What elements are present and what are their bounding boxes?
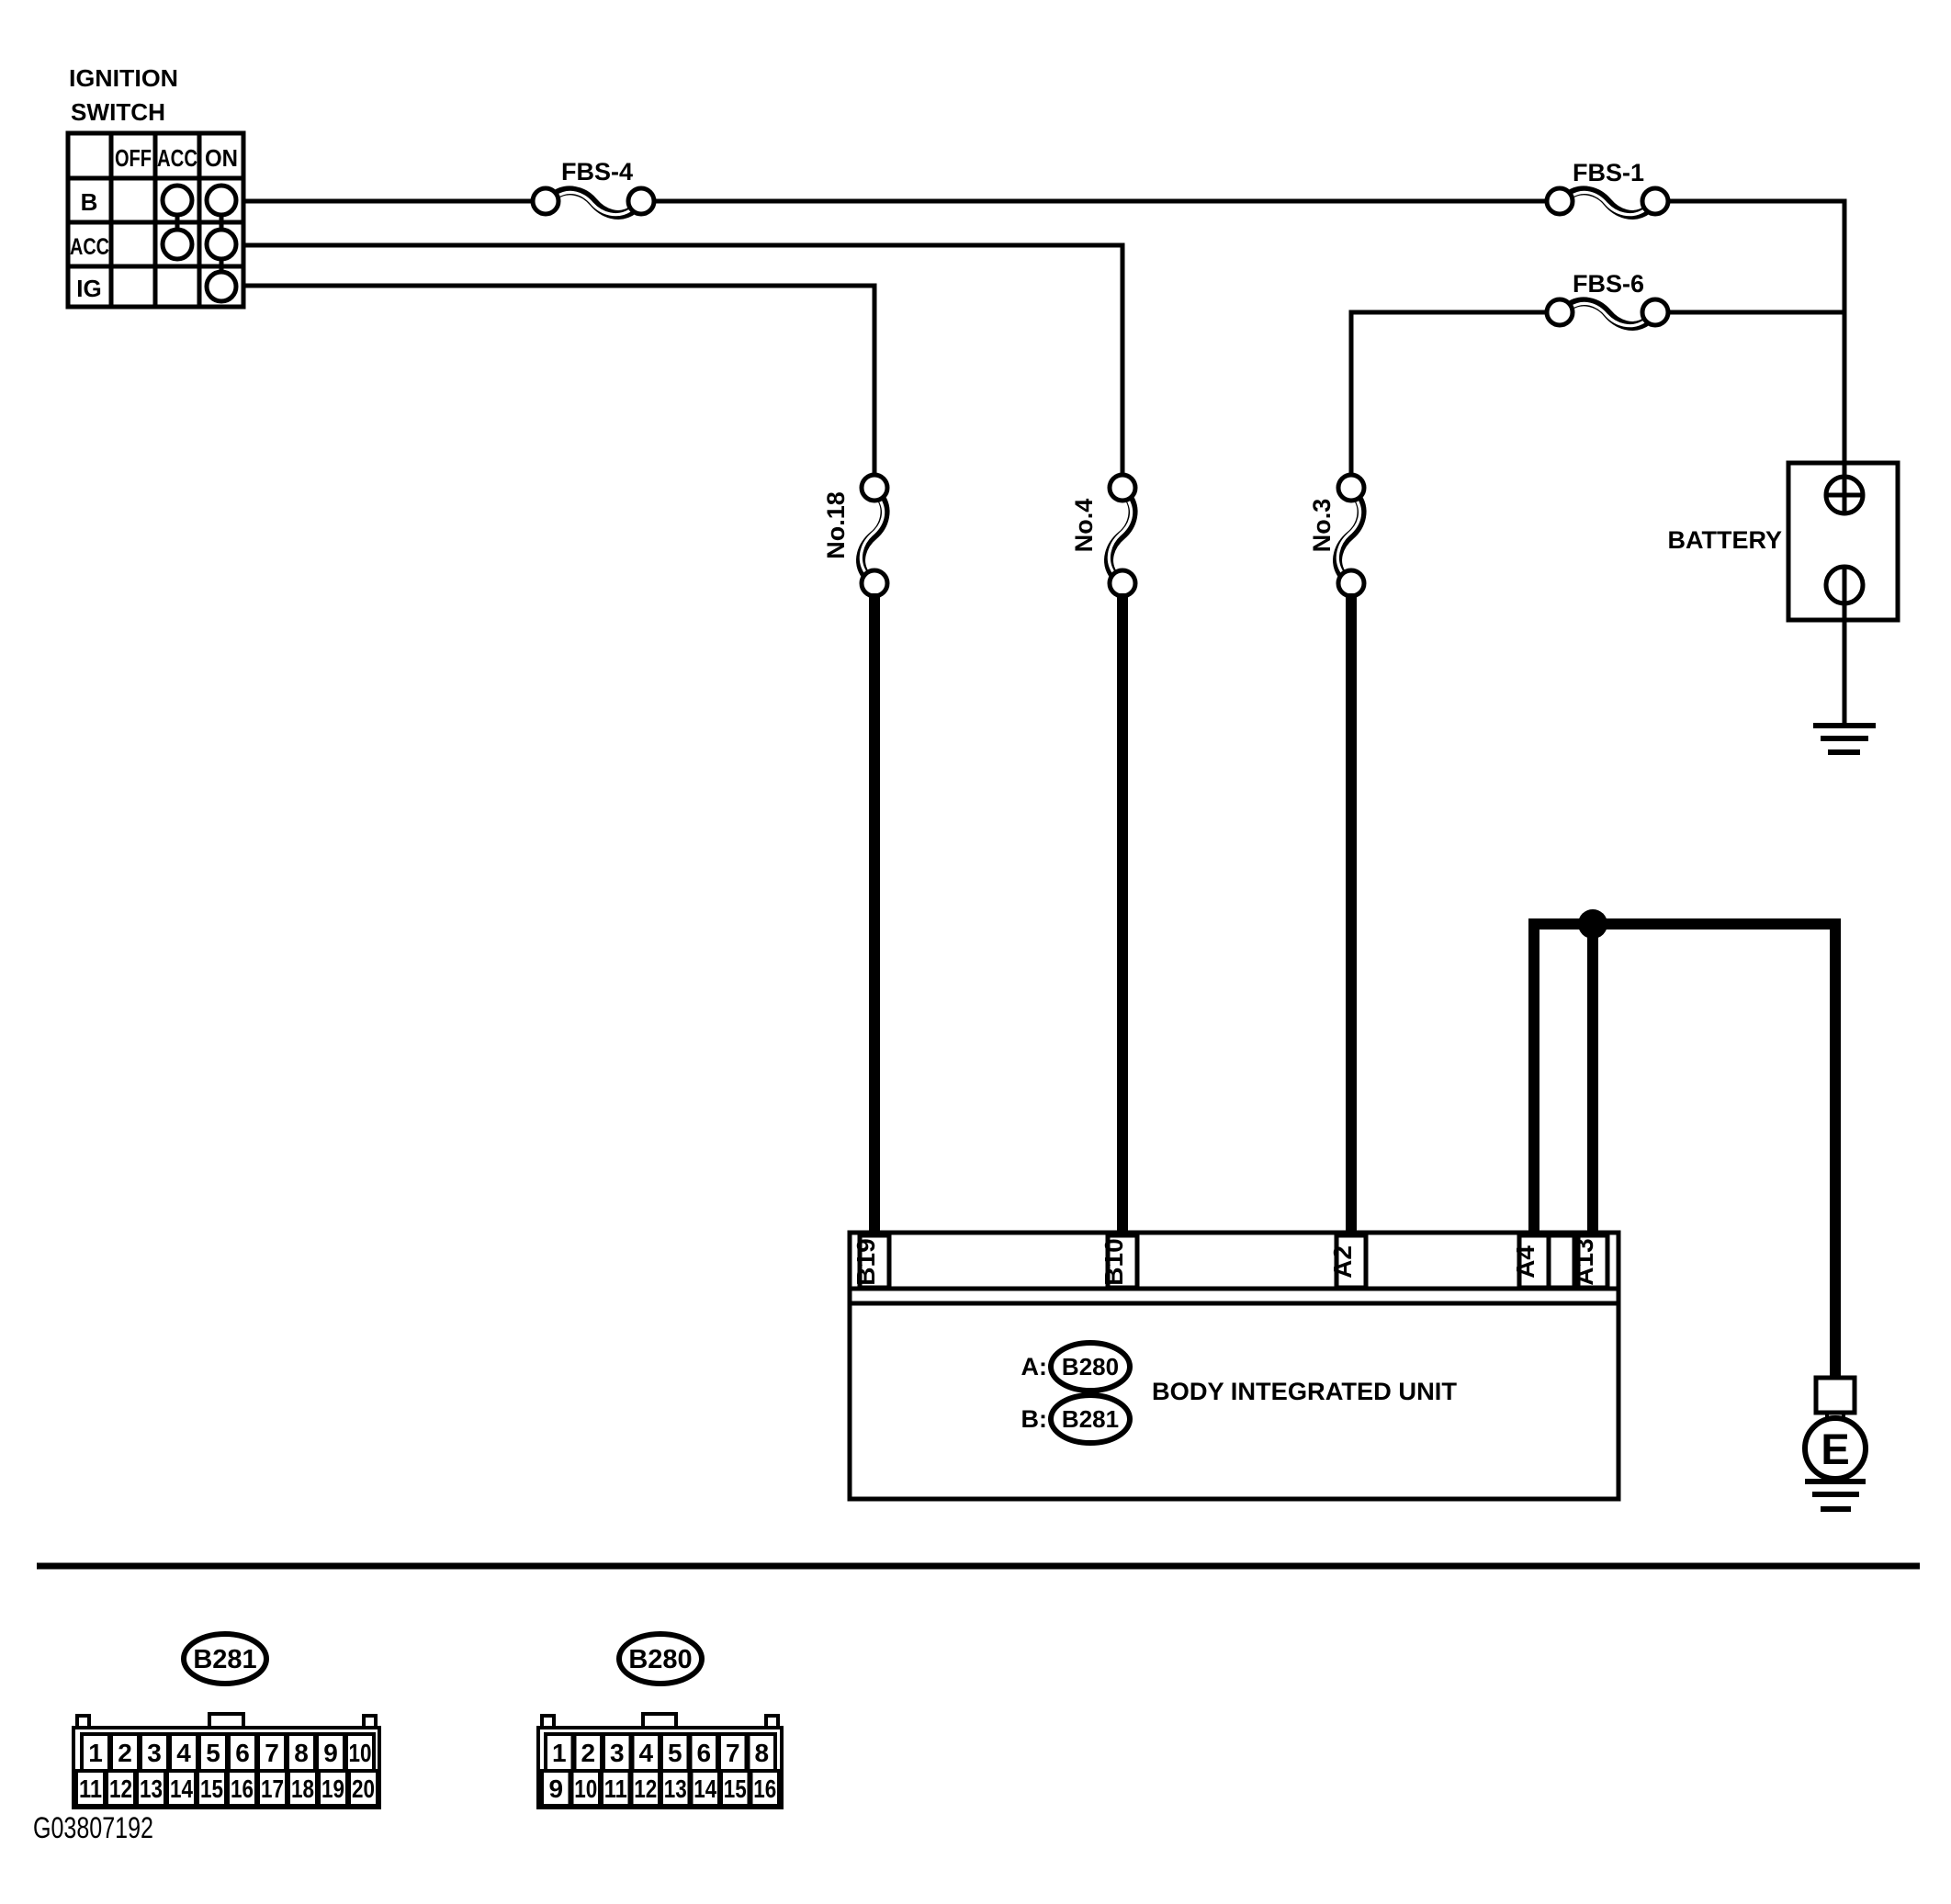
svg-text:13: 13 (140, 1774, 163, 1803)
svg-text:4: 4 (176, 1739, 191, 1767)
svg-text:20: 20 (352, 1774, 375, 1803)
svg-text:11: 11 (604, 1774, 627, 1803)
svg-text:14: 14 (694, 1774, 716, 1803)
svg-text:A2: A2 (1328, 1245, 1357, 1279)
svg-text:13: 13 (664, 1774, 687, 1803)
svg-text:No.4: No.4 (1070, 499, 1098, 553)
svg-text:B:: B: (1021, 1405, 1048, 1433)
svg-text:B281: B281 (1062, 1405, 1119, 1433)
svg-text:A4: A4 (1511, 1245, 1539, 1279)
svg-text:No.18: No.18 (822, 491, 850, 559)
svg-text:12: 12 (109, 1774, 132, 1803)
svg-text:BATTERY: BATTERY (1668, 526, 1783, 554)
svg-text:9: 9 (549, 1774, 564, 1803)
svg-text:FBS-6: FBS-6 (1573, 270, 1644, 298)
svg-text:12: 12 (634, 1774, 657, 1803)
svg-text:10: 10 (349, 1739, 372, 1767)
svg-text:18: 18 (291, 1774, 314, 1803)
svg-text:1: 1 (552, 1739, 567, 1767)
svg-text:B: B (81, 188, 98, 216)
svg-text:6: 6 (235, 1739, 250, 1767)
svg-text:2: 2 (581, 1739, 596, 1767)
svg-text:7: 7 (726, 1739, 740, 1767)
svg-text:BODY INTEGRATED UNIT: BODY INTEGRATED UNIT (1152, 1378, 1458, 1405)
svg-text:IGNITION: IGNITION (69, 64, 178, 92)
svg-text:3: 3 (610, 1739, 625, 1767)
svg-text:3: 3 (147, 1739, 162, 1767)
svg-text:8: 8 (755, 1739, 770, 1767)
svg-text:No.3: No.3 (1308, 499, 1336, 553)
svg-text:2: 2 (118, 1739, 132, 1767)
svg-text:4: 4 (639, 1739, 654, 1767)
svg-text:19: 19 (321, 1774, 344, 1803)
svg-text:B280: B280 (1062, 1353, 1119, 1380)
svg-text:B281: B281 (193, 1645, 256, 1674)
svg-text:9: 9 (323, 1739, 338, 1767)
svg-text:A:: A: (1021, 1353, 1048, 1380)
svg-text:5: 5 (206, 1739, 220, 1767)
svg-text:7: 7 (265, 1739, 279, 1767)
svg-text:G03807192: G03807192 (33, 1811, 153, 1844)
svg-text:SWITCH: SWITCH (71, 98, 165, 126)
svg-text:14: 14 (170, 1774, 193, 1803)
svg-text:6: 6 (697, 1739, 712, 1767)
svg-text:B280: B280 (628, 1645, 692, 1674)
svg-text:1: 1 (88, 1739, 103, 1767)
svg-text:ACC: ACC (157, 144, 197, 172)
svg-text:ACC: ACC (70, 234, 109, 260)
svg-text:ON: ON (205, 144, 238, 172)
svg-text:16: 16 (231, 1774, 254, 1803)
svg-text:10: 10 (574, 1774, 597, 1803)
svg-text:B19: B19 (851, 1238, 880, 1285)
svg-text:B10: B10 (1100, 1238, 1128, 1285)
svg-text:15: 15 (200, 1774, 223, 1803)
svg-text:OFF: OFF (115, 144, 152, 172)
svg-text:8: 8 (294, 1739, 309, 1767)
svg-text:IG: IG (76, 275, 101, 302)
svg-text:FBS-1: FBS-1 (1573, 159, 1644, 186)
svg-text:A13: A13 (1570, 1238, 1598, 1285)
svg-text:11: 11 (79, 1774, 102, 1803)
svg-text:FBS-4: FBS-4 (561, 158, 633, 186)
svg-text:5: 5 (668, 1739, 682, 1767)
svg-text:15: 15 (724, 1774, 747, 1803)
svg-text:16: 16 (753, 1774, 776, 1803)
svg-text:E: E (1821, 1425, 1849, 1473)
svg-text:17: 17 (261, 1774, 284, 1803)
